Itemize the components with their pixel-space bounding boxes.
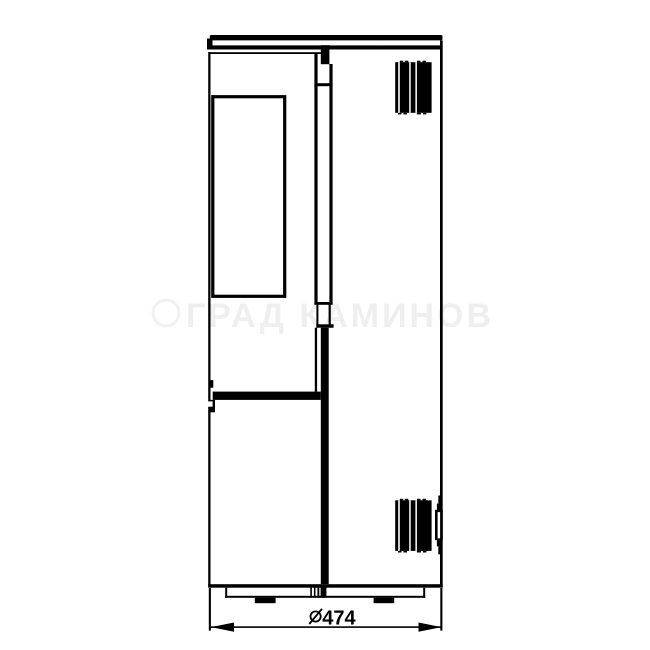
svg-text:ГРАД КАМИНОВ: ГРАД КАМИНОВ (186, 297, 494, 335)
svg-text:474: 474 (322, 607, 356, 629)
